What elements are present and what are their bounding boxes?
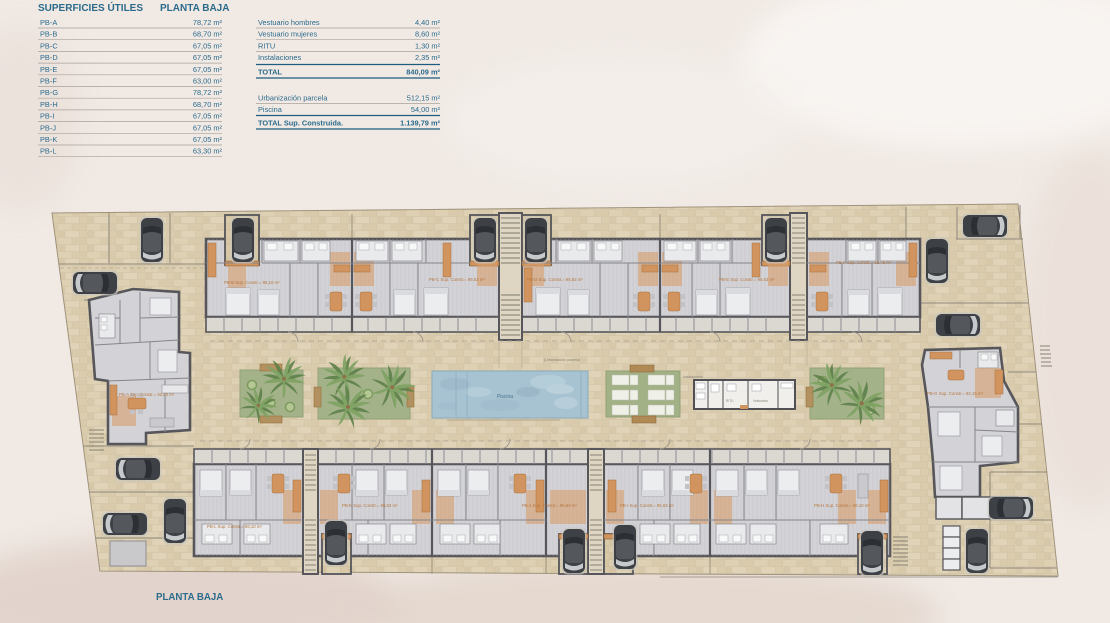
svg-text:8,60 m²: 8,60 m² [415, 30, 441, 39]
svg-text:2,35 m²: 2,35 m² [415, 53, 441, 62]
svg-text:(Urbanización parcela): (Urbanización parcela) [544, 358, 580, 362]
svg-text:PB-E: PB-E [40, 65, 57, 74]
svg-text:RITU: RITU [258, 41, 275, 50]
svg-text:PB-B Sup. Constr.= 98,10 m²: PB-B Sup. Constr.= 98,10 m² [224, 280, 280, 285]
svg-text:PB-L: PB-L [40, 147, 56, 156]
svg-text:Vestuario hombres: Vestuario hombres [258, 18, 320, 27]
svg-text:Piscina: Piscina [258, 105, 283, 114]
svg-text:PB-C: PB-C [40, 41, 58, 50]
svg-text:4,40 m²: 4,40 m² [415, 18, 441, 27]
svg-text:63,30 m²: 63,30 m² [193, 147, 223, 156]
svg-text:PB-H: PB-H [40, 100, 58, 109]
svg-text:67,05 m²: 67,05 m² [193, 112, 223, 121]
svg-text:TOTAL: TOTAL [258, 68, 282, 77]
svg-text:RITU: RITU [726, 399, 734, 403]
svg-text:SUPERFICIES ÚTILES: SUPERFICIES ÚTILES [38, 1, 143, 14]
svg-text:PB-F: PB-F [40, 77, 57, 86]
svg-text:PB-J Sup. Constr.= 95,63 m²: PB-J Sup. Constr.= 95,63 m² [522, 503, 577, 508]
svg-text:PB-C Sup. Constr.= 95,63 m²: PB-C Sup. Constr.= 95,63 m² [429, 277, 485, 282]
svg-text:PB-D Sup. Constr.= 95,63 m²: PB-D Sup. Constr.= 95,63 m² [527, 277, 583, 282]
svg-text:PB-I: PB-I [40, 112, 54, 121]
svg-text:67,05 m²: 67,05 m² [193, 135, 223, 144]
svg-text:78,72 m²: 78,72 m² [193, 18, 223, 27]
svg-text:Instalaciones: Instalaciones [258, 53, 301, 62]
svg-text:1,30 m²: 1,30 m² [415, 41, 441, 50]
svg-text:Vestuario mujeres: Vestuario mujeres [258, 30, 317, 39]
svg-text:PB-B: PB-B [40, 30, 57, 39]
svg-text:Urbanización parcela: Urbanización parcela [258, 94, 328, 103]
svg-text:PB-G: PB-G [40, 88, 58, 97]
svg-text:TOTAL Sup. Construida.: TOTAL Sup. Construida. [258, 119, 343, 128]
svg-text:Vestuarios: Vestuarios [753, 399, 768, 403]
svg-text:PB-G Sup. Constr.= 92,15 m²: PB-G Sup. Constr.= 92,15 m² [927, 391, 984, 396]
svg-text:78,72 m²: 78,72 m² [193, 88, 223, 97]
svg-text:67,05 m²: 67,05 m² [193, 41, 223, 50]
svg-text:PB-J: PB-J [40, 123, 56, 132]
svg-text:54,00 m²: 54,00 m² [411, 105, 441, 114]
svg-text:67,05 m²: 67,05 m² [193, 123, 223, 132]
svg-text:PB-K Sup. Constr.= 95,63 m²: PB-K Sup. Constr.= 95,63 m² [342, 503, 398, 508]
svg-text:68,70 m²: 68,70 m² [193, 100, 223, 109]
svg-text:Instalaciones: Instalaciones [683, 375, 703, 379]
svg-text:Piscina: Piscina [497, 394, 513, 400]
svg-text:67,05 m²: 67,05 m² [193, 53, 223, 62]
svg-text:63,00 m²: 63,00 m² [193, 77, 223, 86]
svg-text:PB-A Sup. Constr.= 92,00 m²: PB-A Sup. Constr.= 92,00 m² [119, 392, 175, 397]
svg-text:PLANTA BAJA: PLANTA BAJA [160, 3, 229, 14]
svg-text:512,15 m²: 512,15 m² [407, 94, 441, 103]
svg-text:PB-H Sup. Constr.= 98,10 m²: PB-H Sup. Constr.= 98,10 m² [814, 503, 870, 508]
svg-text:PB-K: PB-K [40, 135, 57, 144]
svg-text:PB-A: PB-A [40, 18, 57, 27]
svg-text:67,05 m²: 67,05 m² [193, 65, 223, 74]
svg-text:PB-F Sup. Constr.= 82,75 m²: PB-F Sup. Constr.= 82,75 m² [836, 260, 892, 265]
svg-text:1.139,79 m²: 1.139,79 m² [400, 119, 440, 128]
svg-text:PLANTA BAJA: PLANTA BAJA [156, 592, 223, 603]
svg-text:PB-I Sup. Constr.= 95,63 m²: PB-I Sup. Constr.= 95,63 m² [620, 503, 674, 508]
svg-text:PB-E Sup. Constr.= 95,63 m²: PB-E Sup. Constr.= 95,63 m² [719, 277, 775, 282]
svg-text:PB-L Sup. Constr.= 88,10 m²: PB-L Sup. Constr.= 88,10 m² [207, 524, 262, 529]
svg-text:PB-D: PB-D [40, 53, 58, 62]
svg-text:68,70 m²: 68,70 m² [193, 30, 223, 39]
svg-text:840,09 m²: 840,09 m² [406, 68, 440, 77]
